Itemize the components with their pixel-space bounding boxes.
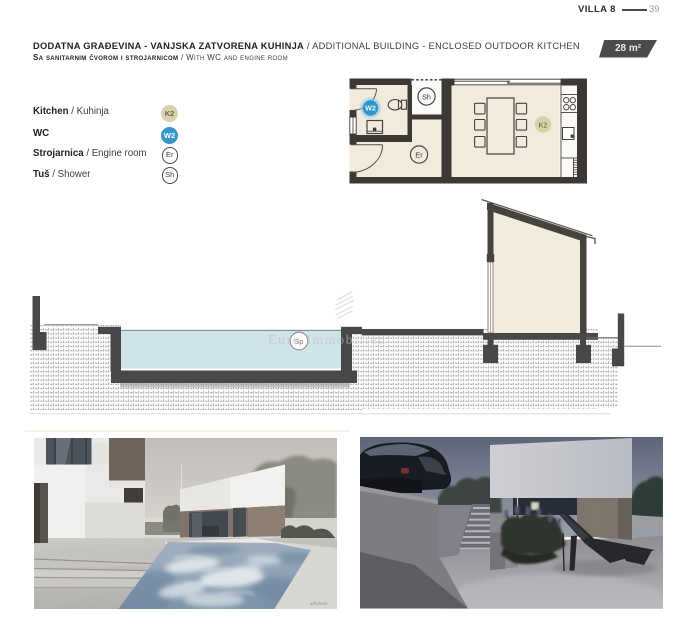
svg-text:Sh: Sh bbox=[422, 92, 431, 101]
svg-text:Er: Er bbox=[415, 150, 423, 159]
svg-text:arhi-tech: arhi-tech bbox=[310, 601, 328, 606]
svg-text:W2: W2 bbox=[365, 104, 376, 113]
svg-text:Euro Immobilien: Euro Immobilien bbox=[268, 333, 387, 348]
svg-text:K2: K2 bbox=[538, 120, 547, 129]
